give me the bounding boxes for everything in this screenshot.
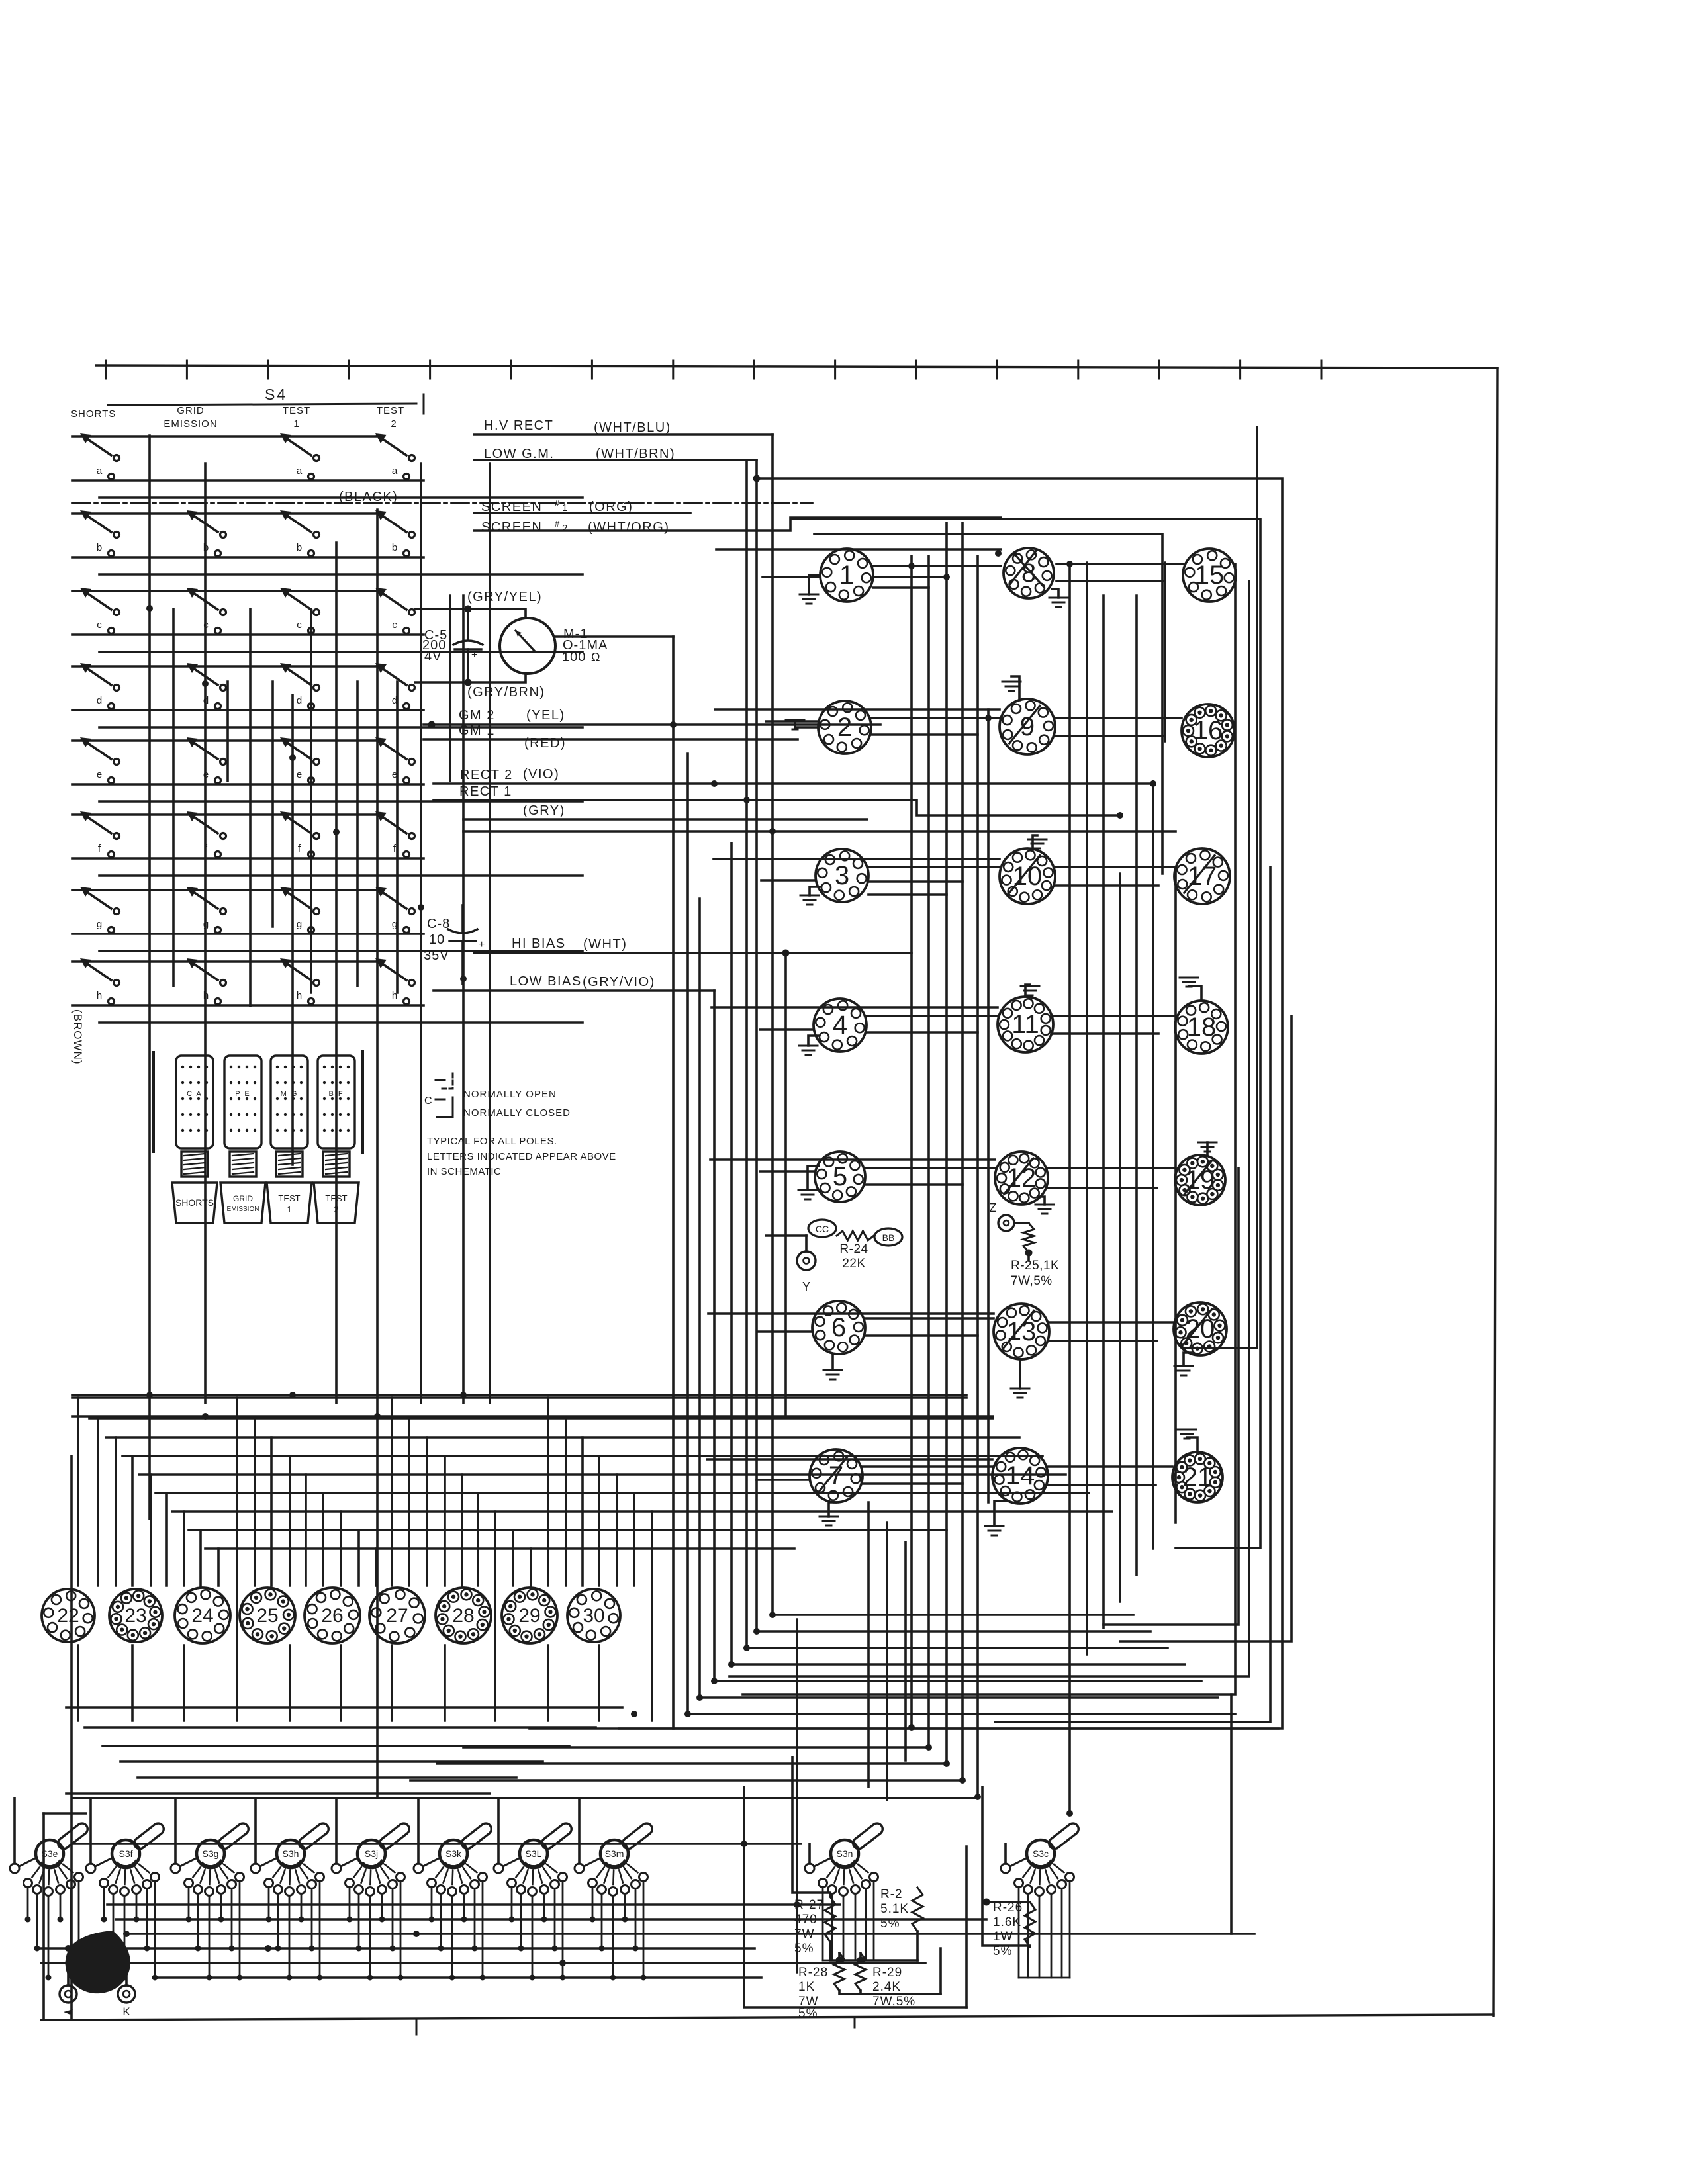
- svg-text:23: 23: [124, 1605, 146, 1627]
- svg-text:f: f: [393, 843, 397, 854]
- svg-text:18: 18: [1187, 1013, 1217, 1042]
- svg-text:1: 1: [839, 561, 854, 590]
- svg-text:S3L: S3L: [526, 1848, 542, 1859]
- svg-text:P E: P E: [235, 1090, 251, 1098]
- svg-text:1: 1: [287, 1205, 291, 1214]
- svg-text:TEST: TEST: [377, 405, 404, 416]
- svg-text:EMISSION: EMISSION: [227, 1206, 259, 1213]
- svg-text:2: 2: [334, 1205, 338, 1214]
- svg-text:RECT 2: RECT 2: [460, 768, 513, 782]
- svg-text:SHORTS: SHORTS: [71, 408, 116, 420]
- svg-text:6: 6: [831, 1313, 846, 1342]
- svg-text:(GRY/YEL): (GRY/YEL): [467, 590, 542, 604]
- svg-text:5.1K: 5.1K: [880, 1902, 909, 1916]
- svg-text:d: d: [97, 695, 102, 706]
- svg-text:2: 2: [391, 418, 397, 430]
- svg-text:g: g: [297, 919, 302, 930]
- svg-text:(BROWN): (BROWN): [71, 1009, 84, 1064]
- svg-text:28: 28: [452, 1605, 474, 1627]
- svg-text:+: +: [479, 939, 485, 950]
- svg-text:22: 22: [57, 1605, 79, 1627]
- svg-text:R-2: R-2: [880, 1888, 903, 1901]
- svg-text:16: 16: [1194, 716, 1223, 745]
- svg-text:e: e: [97, 769, 102, 780]
- svg-text:29: 29: [518, 1605, 540, 1627]
- svg-text:f: f: [98, 843, 101, 854]
- svg-text:a: a: [392, 465, 398, 477]
- svg-text:4: 4: [833, 1011, 847, 1040]
- svg-text:IN SCHEMATIC: IN SCHEMATIC: [427, 1166, 501, 1177]
- svg-text:b: b: [97, 542, 102, 553]
- svg-text:h: h: [97, 990, 102, 1001]
- svg-text:Y: Y: [802, 1280, 810, 1293]
- svg-text:S3n: S3n: [837, 1848, 853, 1859]
- svg-text:Z: Z: [990, 1201, 997, 1214]
- svg-text:20: 20: [1186, 1314, 1215, 1343]
- svg-text:27: 27: [386, 1605, 408, 1627]
- svg-text:(WHT/ORG): (WHT/ORG): [588, 520, 669, 535]
- svg-text:1K: 1K: [798, 1980, 815, 1994]
- svg-text:1.6K: 1.6K: [993, 1915, 1021, 1929]
- svg-text:R-24: R-24: [839, 1242, 868, 1256]
- svg-text:b: b: [297, 542, 302, 553]
- svg-text:(GRY/VIO): (GRY/VIO): [583, 975, 655, 989]
- svg-text:S3h: S3h: [283, 1848, 299, 1859]
- svg-text:24: 24: [191, 1605, 213, 1627]
- svg-text:R-28: R-28: [798, 1966, 828, 1979]
- svg-text:c: c: [297, 619, 302, 631]
- svg-text:7W,5%: 7W,5%: [1011, 1274, 1053, 1288]
- svg-text:30: 30: [583, 1605, 604, 1627]
- svg-text:470: 470: [794, 1913, 818, 1927]
- svg-text:1W: 1W: [993, 1930, 1013, 1944]
- svg-text:(WHT/BLU): (WHT/BLU): [594, 420, 671, 435]
- svg-text:S3e: S3e: [42, 1848, 58, 1859]
- svg-text:S3f: S3f: [118, 1848, 132, 1859]
- svg-text:e: e: [297, 769, 302, 780]
- svg-text:SHORTS: SHORTS: [175, 1197, 214, 1208]
- svg-text:S3c: S3c: [1033, 1848, 1049, 1859]
- svg-text:9: 9: [1020, 712, 1035, 741]
- svg-text:EMISSION: EMISSION: [164, 418, 217, 430]
- svg-text:(VIO): (VIO): [523, 767, 559, 782]
- svg-text:b: b: [392, 542, 397, 553]
- svg-text:NORMALLY OPEN: NORMALLY OPEN: [463, 1089, 557, 1100]
- svg-text:C-8: C-8: [427, 917, 450, 931]
- svg-text:S3g: S3g: [203, 1848, 219, 1859]
- svg-text:1: 1: [293, 418, 299, 430]
- svg-text:(WHT): (WHT): [583, 937, 627, 952]
- svg-text:a: a: [297, 465, 303, 477]
- svg-text:5%: 5%: [880, 1917, 900, 1931]
- svg-text:LOW BIAS: LOW BIAS: [510, 974, 582, 989]
- svg-text:22K: 22K: [842, 1257, 865, 1271]
- svg-text:CC: CC: [816, 1224, 829, 1234]
- svg-text:3: 3: [835, 861, 849, 890]
- svg-text:12: 12: [1007, 1163, 1037, 1193]
- svg-text:2: 2: [562, 523, 568, 534]
- svg-text:(GRY/BRN): (GRY/BRN): [467, 685, 545, 700]
- svg-text:GRID: GRID: [177, 405, 205, 416]
- svg-text:TEST: TEST: [325, 1193, 347, 1203]
- svg-text:7W: 7W: [794, 1927, 815, 1941]
- svg-text:f: f: [298, 843, 301, 854]
- svg-text:d: d: [297, 695, 302, 706]
- svg-text:h: h: [297, 990, 302, 1001]
- svg-text:10: 10: [1013, 862, 1043, 891]
- svg-text:2: 2: [837, 713, 852, 742]
- svg-text:K: K: [122, 2005, 130, 2018]
- svg-text:NORMALLY CLOSED: NORMALLY CLOSED: [463, 1107, 571, 1118]
- svg-text:26: 26: [321, 1605, 343, 1627]
- svg-text:2.4K: 2.4K: [872, 1980, 901, 1994]
- svg-text:RECT 1: RECT 1: [459, 784, 512, 799]
- svg-text:H.V RECT: H.V RECT: [484, 418, 553, 433]
- svg-text:(GRY): (GRY): [523, 803, 565, 818]
- svg-text:c: c: [97, 619, 102, 631]
- svg-text:10: 10: [429, 933, 445, 947]
- svg-text:C A: C A: [187, 1090, 203, 1098]
- svg-text:TEST: TEST: [278, 1193, 300, 1203]
- svg-text:Ω: Ω: [591, 651, 600, 664]
- svg-text:5: 5: [833, 1162, 847, 1191]
- svg-text:5%: 5%: [798, 2007, 818, 2021]
- svg-text:a: a: [97, 465, 103, 477]
- svg-text:21: 21: [1183, 1463, 1213, 1492]
- svg-text:S3j: S3j: [365, 1848, 378, 1859]
- svg-text:g: g: [97, 919, 102, 930]
- svg-text:c: c: [392, 619, 397, 631]
- svg-text:C: C: [424, 1095, 433, 1107]
- svg-text:19: 19: [1186, 1165, 1215, 1195]
- svg-text:S4: S4: [265, 386, 287, 403]
- svg-text:25: 25: [256, 1605, 278, 1627]
- svg-text:(YEL): (YEL): [526, 708, 565, 723]
- svg-text:13: 13: [1007, 1317, 1037, 1346]
- svg-text:LETTERS INDICATED APPEAR ABOVE: LETTERS INDICATED APPEAR ABOVE: [427, 1151, 616, 1162]
- svg-text:15: 15: [1195, 561, 1225, 590]
- svg-text:14: 14: [1006, 1461, 1035, 1490]
- svg-text:HI BIAS: HI BIAS: [512, 936, 566, 951]
- svg-text:M G: M G: [281, 1090, 299, 1098]
- svg-text:TEST: TEST: [283, 405, 310, 416]
- svg-text:8: 8: [1021, 559, 1036, 588]
- svg-text:11: 11: [1011, 1010, 1039, 1039]
- svg-text:TYPICAL FOR ALL POLES.: TYPICAL FOR ALL POLES.: [427, 1136, 557, 1147]
- svg-text:7: 7: [829, 1461, 843, 1490]
- svg-text:S3k: S3k: [445, 1848, 462, 1859]
- svg-text:5%: 5%: [794, 1942, 814, 1956]
- svg-text:R-25,1K: R-25,1K: [1011, 1259, 1059, 1273]
- svg-text:B F: B F: [328, 1090, 344, 1098]
- svg-text:BB: BB: [882, 1232, 895, 1243]
- svg-text:#: #: [555, 519, 560, 529]
- svg-text:GRID: GRID: [233, 1194, 253, 1203]
- svg-text:R-29: R-29: [872, 1966, 902, 1979]
- svg-text:S3m: S3m: [605, 1848, 624, 1859]
- svg-text:17: 17: [1188, 862, 1217, 891]
